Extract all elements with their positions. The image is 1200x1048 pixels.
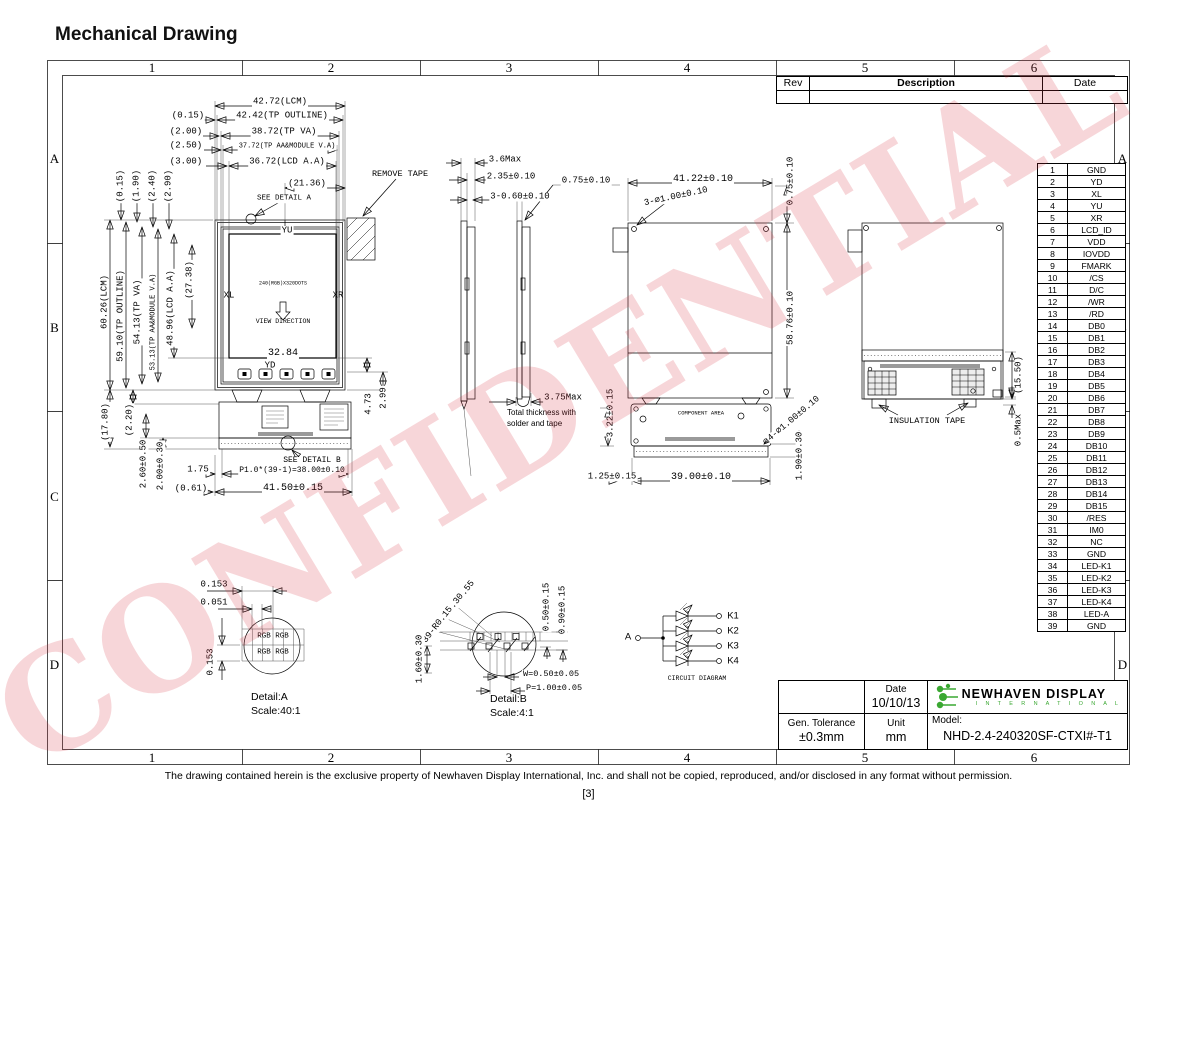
dim-label: Total thickness with: [506, 409, 577, 417]
pin-name: LED-K2: [1068, 572, 1126, 584]
dim-label: Scale:4:1: [489, 708, 535, 719]
dim-label: Scale:40:1: [250, 706, 302, 717]
dim-label: 2.35±0.10: [486, 173, 537, 182]
grid-column-label: 4: [684, 60, 691, 76]
grid-column-label: 1: [149, 60, 156, 76]
dim-label: REMOVE TAPE: [371, 170, 429, 179]
dim-label: 0.75±0.10: [561, 177, 612, 186]
dim-label: 4.73: [365, 392, 374, 416]
dim-label: 1.75: [186, 466, 210, 475]
pin-number: 2: [1038, 176, 1068, 188]
pin-name: DB8: [1068, 416, 1126, 428]
dim-label: (0.15): [117, 169, 126, 203]
rear-view-taped: [848, 223, 1016, 418]
logo-cell: NEWHAVEN DISPLAY I N T E R N A T I O N A…: [928, 681, 1127, 713]
pin-name: IOVDD: [1068, 248, 1126, 260]
pin-number: 35: [1038, 572, 1068, 584]
tolerance-value: ±0.3mm: [799, 730, 844, 745]
pin-row: 2 YD: [1038, 176, 1126, 188]
unit-cell: Unit mm: [865, 714, 928, 749]
dim-label: 37.72(TP AA&MODULE V.A): [238, 144, 337, 151]
dim-label: (0.61): [174, 485, 208, 494]
pin-number: 26: [1038, 464, 1068, 476]
dim-label: 36.72(LCD A.A): [248, 158, 326, 167]
pin-name: /RES: [1068, 512, 1126, 524]
dim-label: 0.50±0.15: [543, 582, 552, 633]
dim-label: 3.6Max: [488, 156, 522, 165]
pin-row: 20 DB6: [1038, 392, 1126, 404]
pin-row: 6 LCD_ID: [1038, 224, 1126, 236]
dim-label: 240(RGB)X320DOTS: [258, 282, 308, 287]
pin-row: 37 LED-K4: [1038, 596, 1126, 608]
led-k3: [663, 633, 722, 651]
title-block-empty-cell: [779, 681, 865, 713]
pin-number: 5: [1038, 212, 1068, 224]
pin-row: 28 DB14: [1038, 488, 1126, 500]
dim-label: 1.90±0.30: [796, 431, 805, 482]
footer-disclaimer: The drawing contained herein is the excl…: [47, 770, 1130, 782]
pin-row: 14 DB0: [1038, 320, 1126, 332]
dim-label: 32.84: [267, 349, 299, 359]
icon-row: [238, 369, 335, 379]
dim-label: (17.80): [102, 402, 111, 442]
grid-column-label: 3: [506, 750, 513, 766]
pin-name: NC: [1068, 536, 1126, 548]
pin-row: 16 DB2: [1038, 344, 1126, 356]
dim-label: 3.75Max: [543, 394, 583, 403]
pin-number: 11: [1038, 284, 1068, 296]
pin-name: DB4: [1068, 368, 1126, 380]
pin-number: 8: [1038, 248, 1068, 260]
pin-name: /WR: [1068, 296, 1126, 308]
pin-row: 9 FMARK: [1038, 260, 1126, 272]
dim-label: (15.50): [1015, 355, 1024, 395]
logo-subtext: I N T E R N A T I O N A L: [976, 701, 1122, 707]
grid-column-label: 5: [862, 750, 869, 766]
dim-label: P1.0*(39-1)=38.00±0.10: [238, 467, 346, 475]
pin-number: 18: [1038, 368, 1068, 380]
grid-column-label: 6: [1031, 60, 1038, 76]
dim-label: 48.96(LCD A.A): [167, 269, 176, 347]
grid-column-label: 6: [1031, 750, 1038, 766]
logo-text: NEWHAVEN DISPLAY: [962, 687, 1122, 701]
pin-number: 15: [1038, 332, 1068, 344]
pin-number: 38: [1038, 608, 1068, 620]
pin-number: 20: [1038, 392, 1068, 404]
dim-label: RGB RGB: [256, 633, 290, 641]
tolerance-label: Gen. Tolerance: [788, 718, 856, 730]
pin-name: IM0: [1068, 524, 1126, 536]
led-k2: [663, 618, 722, 636]
pin-number: 19: [1038, 380, 1068, 392]
pin-number: 4: [1038, 200, 1068, 212]
dim-label: 2.60±0.50: [140, 439, 149, 490]
pin-number: 21: [1038, 404, 1068, 416]
pin-row: 15 DB1: [1038, 332, 1126, 344]
dim-label: (1.90): [133, 169, 142, 203]
led-k1: [663, 603, 722, 621]
pin-name: YU: [1068, 200, 1126, 212]
pin-name: DB15: [1068, 500, 1126, 512]
pin-number: 22: [1038, 416, 1068, 428]
dim-label: 42.72(LCM): [252, 98, 308, 107]
circuit-diagram: [636, 603, 722, 666]
pin-name: VDD: [1068, 236, 1126, 248]
dim-label: solder and tape: [506, 420, 563, 428]
dim-label: 0.051: [199, 599, 228, 608]
model-cell: Model: NHD-2.4-240320SF-CTXI#-T1: [928, 714, 1127, 749]
pin-name: LED-K1: [1068, 560, 1126, 572]
date-label: Date: [885, 684, 906, 696]
led-k4: [663, 648, 722, 666]
pin-row: 35 LED-K2: [1038, 572, 1126, 584]
pin-name: DB14: [1068, 488, 1126, 500]
pin-number: 27: [1038, 476, 1068, 488]
dim-label: Detail:B: [489, 694, 528, 705]
grid-row-label: D: [1118, 657, 1127, 673]
pin-number: 34: [1038, 560, 1068, 572]
pin-number: 30: [1038, 512, 1068, 524]
pin-number: 24: [1038, 440, 1068, 452]
grid-column-label: 1: [149, 750, 156, 766]
pin-name: LED-K3: [1068, 584, 1126, 596]
newhaven-logo: NEWHAVEN DISPLAY I N T E R N A T I O N A…: [934, 682, 1122, 712]
dim-label: W=0.50±0.05: [522, 670, 580, 679]
dim-label: 53.13(TP AA&MODULE V.A): [151, 273, 158, 372]
dim-label: (0.15): [171, 112, 205, 121]
revision-table: Rev Description Date: [776, 76, 1128, 104]
pin-number: 17: [1038, 356, 1068, 368]
grid-row-label: A: [50, 151, 59, 167]
pin-name: DB11: [1068, 452, 1126, 464]
pin-name: DB6: [1068, 392, 1126, 404]
pin-row: 5 XR: [1038, 212, 1126, 224]
dim-label: 0.90±0.15: [559, 585, 568, 636]
date-value: 10/10/13: [872, 696, 921, 711]
pin-name: YD: [1068, 176, 1126, 188]
pin-row: 24 DB10: [1038, 440, 1126, 452]
dim-label: 42.42(TP OUTLINE): [235, 112, 329, 121]
unit-label: Unit: [887, 718, 905, 730]
pin-name: DB10: [1068, 440, 1126, 452]
dim-label: (2.90): [165, 169, 174, 203]
pin-name: DB5: [1068, 380, 1126, 392]
dim-label: 1.60±0.30: [416, 634, 425, 685]
grid-column-label: 2: [328, 60, 335, 76]
pin-name: /RD: [1068, 308, 1126, 320]
dim-label: (27.38): [186, 260, 195, 300]
pin-name: DB13: [1068, 476, 1126, 488]
description-column-header: Description: [810, 77, 1043, 90]
pin-name: LED-K4: [1068, 596, 1126, 608]
dim-label: 58.76±0.10: [787, 290, 796, 346]
pin-row: 34 LED-K1: [1038, 560, 1126, 572]
dim-label: 39.00±0.10: [670, 473, 732, 483]
dim-label: P=1.00±0.05: [525, 684, 583, 693]
pin-name: DB2: [1068, 344, 1126, 356]
dim-label: 1.25±0.15: [587, 473, 638, 482]
dim-label: CIRCUIT DIAGRAM: [667, 676, 728, 683]
pin-name: FMARK: [1068, 260, 1126, 272]
pin-table: 1 GND 2 YD 3 XL 4 YU 5 XR 6 LCD_ID 7 VDD…: [1037, 163, 1126, 632]
pin-row: 4 YU: [1038, 200, 1126, 212]
pin-name: D/C: [1068, 284, 1126, 296]
pin-row: 38 LED-A: [1038, 608, 1126, 620]
dim-label: (2.40): [149, 169, 158, 203]
pin-number: 39: [1038, 620, 1068, 632]
pin-name: DB12: [1068, 464, 1126, 476]
grid-row-label: B: [50, 320, 59, 336]
model-label: Model:: [932, 715, 962, 727]
pin-row: 3 XL: [1038, 188, 1126, 200]
pin-number: 32: [1038, 536, 1068, 548]
pin-number: 23: [1038, 428, 1068, 440]
dim-label: 0.5Max: [1015, 413, 1024, 447]
pin-row: 32 NC: [1038, 536, 1126, 548]
dim-label: 54.13(TP VA): [134, 279, 143, 346]
dim-label: SEE DETAIL A: [256, 195, 312, 203]
pin-row: 13 /RD: [1038, 308, 1126, 320]
pin-row: 8 IOVDD: [1038, 248, 1126, 260]
dim-label: 41.22±0.10: [672, 175, 734, 185]
dim-label: 38.72(TP VA): [251, 128, 318, 137]
pin-number: 3: [1038, 188, 1068, 200]
pin-row: 25 DB11: [1038, 452, 1126, 464]
tolerance-cell: Gen. Tolerance ±0.3mm: [779, 714, 865, 749]
pin-name: LED-A: [1068, 608, 1126, 620]
dim-label: K3: [726, 641, 740, 651]
unit-value: mm: [886, 730, 907, 745]
pin-row: 11 D/C: [1038, 284, 1126, 296]
grid-column-label: 3: [506, 60, 513, 76]
dim-label: 2.99: [380, 386, 389, 410]
title-block: Date 10/10/13 NEWHAVEN DISPLAY I N T E R…: [778, 680, 1128, 750]
pin-name: DB9: [1068, 428, 1126, 440]
dim-label: (2.00): [169, 128, 203, 137]
dim-label: 41.50±0.15: [262, 484, 324, 494]
pin-name: XL: [1068, 188, 1126, 200]
pin-number: 6: [1038, 224, 1068, 236]
pin-row: 17 DB3: [1038, 356, 1126, 368]
pin-row: 21 DB7: [1038, 404, 1126, 416]
dim-label: (2.20): [126, 403, 135, 437]
pin-name: /CS: [1068, 272, 1126, 284]
pin-row: 23 DB9: [1038, 428, 1126, 440]
dim-label: Detail:A: [250, 692, 289, 703]
dim-label: (2.50): [169, 142, 203, 151]
pin-row: 10 /CS: [1038, 272, 1126, 284]
pin-name: DB0: [1068, 320, 1126, 332]
pin-name: LCD_ID: [1068, 224, 1126, 236]
side-view: [446, 158, 620, 481]
dim-label: 0.153: [199, 581, 228, 590]
dim-label: YD: [264, 362, 277, 371]
pin-number: 37: [1038, 596, 1068, 608]
dim-label: INSULATION TAPE: [888, 417, 967, 426]
dim-label: K2: [726, 626, 740, 636]
pin-number: 36: [1038, 584, 1068, 596]
dim-label: 2.00±0.30: [157, 441, 166, 492]
dim-label: YU: [281, 227, 294, 236]
dim-label: (3.00): [169, 158, 203, 167]
pin-row: 18 DB4: [1038, 368, 1126, 380]
dim-label: RGB RGB: [256, 649, 290, 657]
revision-table-header: Rev Description Date: [777, 77, 1127, 91]
page-number: [3]: [47, 788, 1130, 800]
dim-label: K1: [726, 611, 740, 621]
pin-row: 33 GND: [1038, 548, 1126, 560]
logo-glyph: [934, 682, 960, 712]
revision-table-empty-row: [777, 91, 1127, 104]
pin-number: 13: [1038, 308, 1068, 320]
rev-column-header: Rev: [777, 77, 810, 90]
grid-row-label: C: [50, 489, 59, 505]
pin-number: 25: [1038, 452, 1068, 464]
dim-label: (21.36): [287, 180, 327, 189]
pin-name: DB3: [1068, 356, 1126, 368]
grid-row-label: D: [50, 657, 59, 673]
pin-number: 10: [1038, 272, 1068, 284]
dim-label: 0.75±0.10: [787, 156, 796, 207]
pin-name: GND: [1068, 620, 1126, 632]
date-column-header: Date: [1043, 77, 1127, 90]
dim-label: 3.22±0.15: [607, 388, 616, 439]
pin-name: DB1: [1068, 332, 1126, 344]
pin-row: 36 LED-K3: [1038, 584, 1126, 596]
pin-row: 19 DB5: [1038, 380, 1126, 392]
pin-number: 33: [1038, 548, 1068, 560]
dim-label: VIEW DIRECTION: [255, 319, 312, 326]
pin-row: 39 GND: [1038, 620, 1126, 632]
pin-number: 28: [1038, 488, 1068, 500]
pin-number: 9: [1038, 260, 1068, 272]
grid-column-label: 2: [328, 750, 335, 766]
model-value: NHD-2.4-240320SF-CTXI#-T1: [943, 729, 1112, 744]
dim-label: 3-0.60±0.10: [489, 193, 550, 202]
pin-number: 16: [1038, 344, 1068, 356]
pin-number: 12: [1038, 296, 1068, 308]
pin-row: 12 /WR: [1038, 296, 1126, 308]
grid-column-label: 5: [862, 60, 869, 76]
dim-label: 59.10(TP OUTLINE): [117, 269, 126, 363]
dim-label: K4: [726, 656, 740, 666]
pin-number: 7: [1038, 236, 1068, 248]
pin-number: 31: [1038, 524, 1068, 536]
dim-label: A: [624, 632, 632, 642]
grid-column-label: 4: [684, 750, 691, 766]
pin-row: 29 DB15: [1038, 500, 1126, 512]
pin-row: 22 DB8: [1038, 416, 1126, 428]
pin-row: 1 GND: [1038, 164, 1126, 176]
pin-row: 30 /RES: [1038, 512, 1126, 524]
dim-label: COMPONENT AREA: [677, 410, 725, 416]
pin-row: 7 VDD: [1038, 236, 1126, 248]
dim-label: SEE DETAIL B: [282, 457, 342, 465]
dim-label: XL: [223, 292, 236, 301]
pin-name: XR: [1068, 212, 1126, 224]
pin-row: 31 IM0: [1038, 524, 1126, 536]
pin-number: 1: [1038, 164, 1068, 176]
pin-row: 27 DB13: [1038, 476, 1126, 488]
pin-name: GND: [1068, 164, 1126, 176]
dim-label: 60.26(LCM): [101, 274, 110, 330]
dim-label: XR: [332, 292, 345, 301]
pin-number: 29: [1038, 500, 1068, 512]
date-cell: Date 10/10/13: [865, 681, 928, 713]
pin-name: DB7: [1068, 404, 1126, 416]
pin-row: 26 DB12: [1038, 464, 1126, 476]
pin-name: GND: [1068, 548, 1126, 560]
pin-number: 14: [1038, 320, 1068, 332]
dim-label: 0.153: [207, 647, 216, 676]
